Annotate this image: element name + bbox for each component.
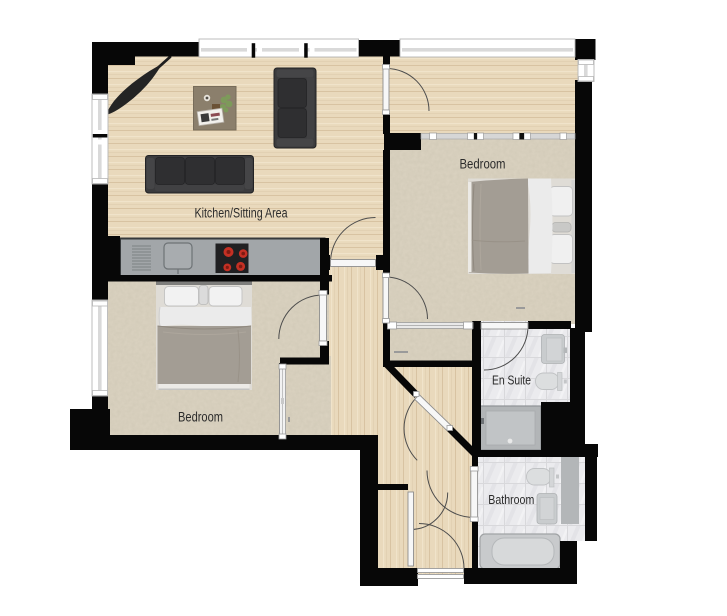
svg-text:Bedroom: Bedroom: [178, 410, 223, 425]
svg-text:Bedroom: Bedroom: [460, 157, 506, 172]
svg-text:Bathroom: Bathroom: [488, 492, 534, 507]
svg-text:Kitchen/Sitting Area: Kitchen/Sitting Area: [195, 206, 288, 221]
svg-text:En Suite: En Suite: [492, 373, 531, 388]
